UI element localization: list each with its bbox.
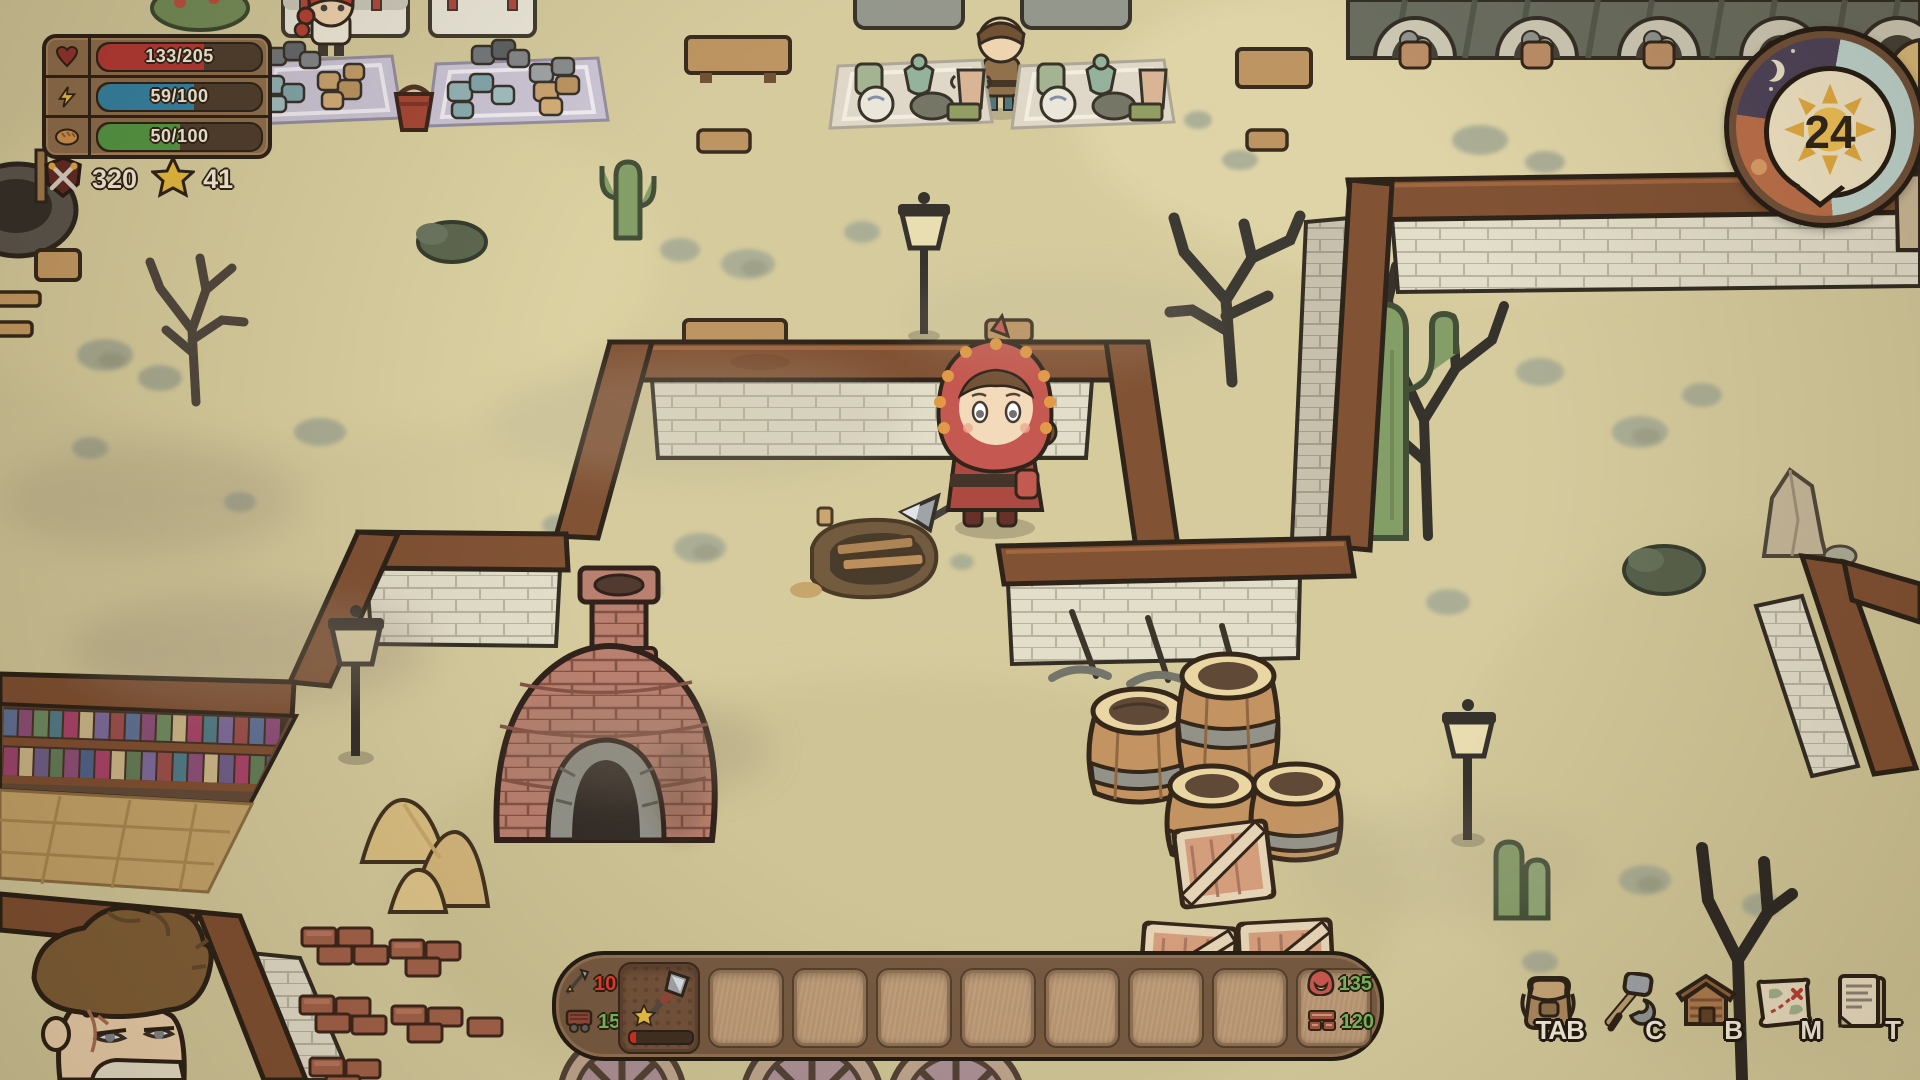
day-badge[interactable]: 24 [1724,26,1920,228]
notes-key-label: T [1885,1015,1900,1046]
bush-top-left [416,222,486,262]
spear-icon [564,968,590,1001]
npc-boy-closeup[interactable] [34,908,211,1080]
bucket[interactable] [396,87,432,130]
day-number: 24 [1804,105,1855,159]
hood-counter: 135 [1307,969,1374,999]
hotbar-slot-7[interactable] [1128,968,1204,1048]
hotbar-slot-5[interactable] [960,968,1036,1048]
hotbar-right-counters: 135 120 [1307,969,1374,1037]
hood-count: 135 [1339,973,1372,996]
heart-icon [46,38,91,75]
hotbar-slot-6[interactable] [1044,968,1120,1048]
spear-count: 10 [594,973,616,996]
game-viewport: 133/205 59/100 50/100 320 [0,0,1920,1080]
hotbar-slot-8[interactable] [1212,968,1288,1048]
hotbar-slot-2[interactable] [708,968,784,1048]
star-points: 41 [151,156,233,203]
health-bar: 133/205 [46,38,268,78]
antique-mat-1[interactable] [830,55,992,128]
energy-bar: 59/100 [46,78,268,118]
bread-icon [46,118,91,155]
notes-icon [1832,1021,1890,1038]
bush-right [1624,546,1704,594]
currency-row: 320 41 [42,156,233,203]
bricks-counter: 120 [1307,1007,1374,1037]
inventory-shortcut[interactable]: TAB [1516,972,1580,1048]
durability-bar [628,1030,694,1045]
map-shortcut[interactable]: M [1753,972,1817,1048]
durability-fill [630,1032,636,1043]
food-value: 50/100 [98,124,261,150]
star-icon [151,156,195,203]
ground [0,0,1920,1080]
energy-value: 59/100 [98,84,261,110]
health-value: 133/205 [98,44,261,70]
battle-shield-icon [42,156,84,203]
bricks-icon [1307,1008,1337,1037]
hotbar-slot-1-selected[interactable] [618,962,700,1054]
hotbar: 10 150 [552,951,1384,1061]
red-hood-icon [1307,968,1335,1001]
crafting-key-label: C [1645,1015,1663,1046]
hotbar-slot-4[interactable] [876,968,952,1048]
game-world [0,0,1920,1080]
star-points-value: 41 [203,164,233,195]
battle-points-value: 320 [92,164,137,195]
build-key-label: B [1724,1015,1742,1046]
top-left-plant [152,0,248,30]
crafting-shortcut[interactable]: C [1595,972,1659,1048]
map-key-label: M [1800,1015,1821,1046]
notes-shortcut[interactable]: T [1832,972,1896,1048]
stat-panel: 133/205 59/100 50/100 [42,34,272,159]
moon-icon [1752,56,1780,84]
build-shortcut[interactable]: B [1674,972,1738,1048]
lightning-icon [46,78,91,115]
cart-icon [564,1007,594,1038]
setting-sun-icon [1751,159,1767,175]
shortcut-bar: TAB C B [1516,972,1896,1048]
bricks-count: 120 [1341,1011,1374,1034]
antique-mat-2[interactable] [1012,55,1174,128]
hotbar-slot-3[interactable] [792,968,868,1048]
item-star-icon [632,1004,656,1032]
battle-points: 320 [42,156,137,203]
food-bar: 50/100 [46,118,268,155]
hotbar-slots [618,968,1372,1048]
inventory-key-label: TAB [1535,1015,1584,1046]
